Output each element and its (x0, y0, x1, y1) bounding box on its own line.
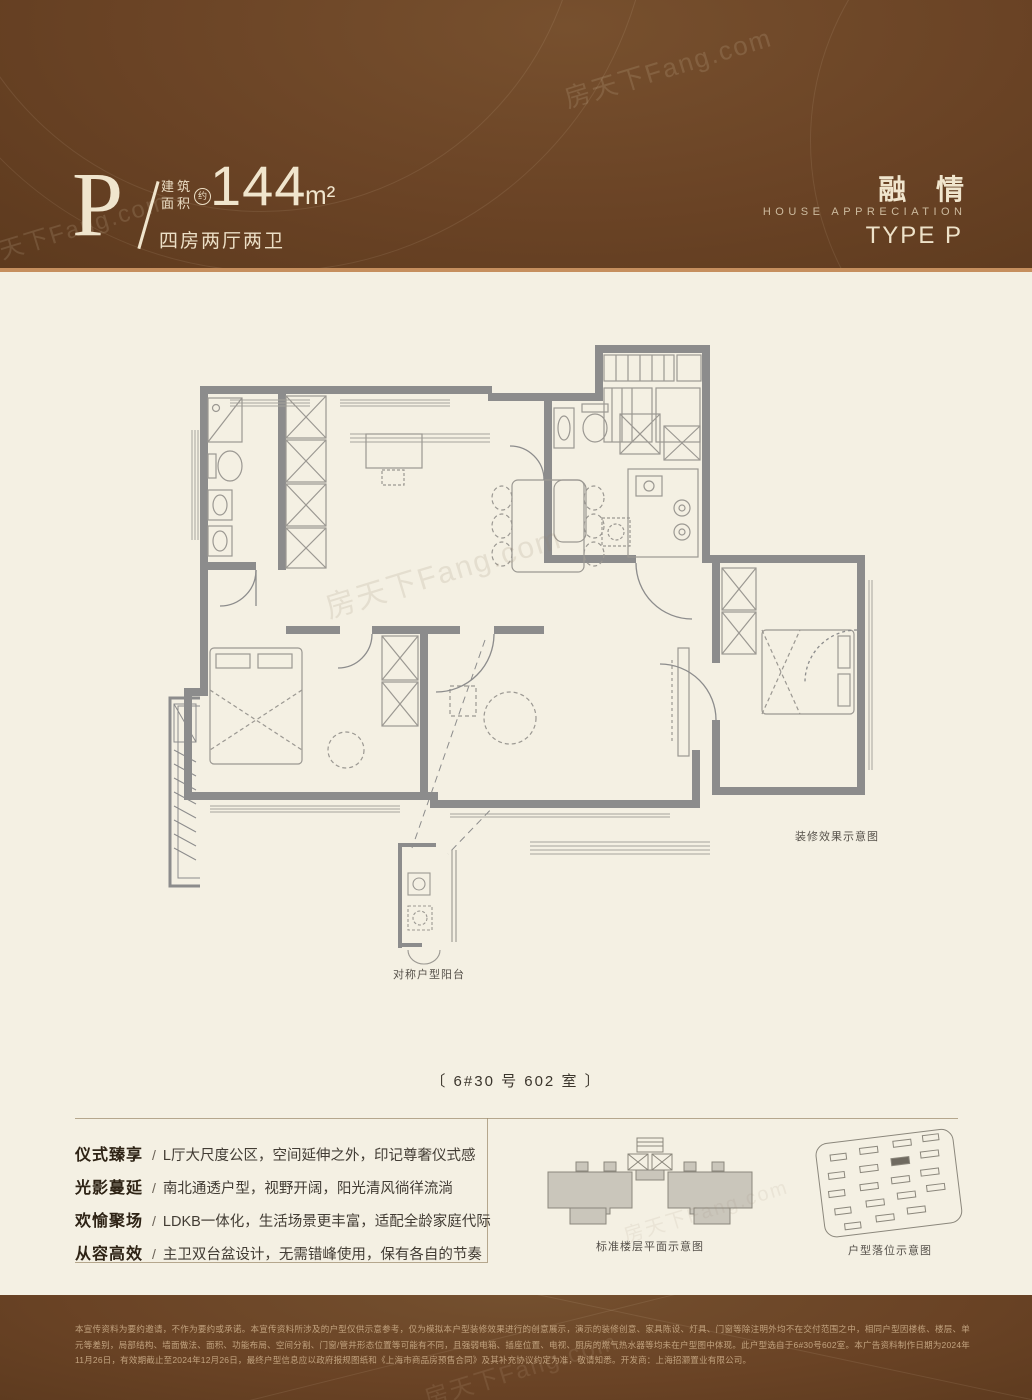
feature-row: 从容高效 / 主卫双台盆设计，无需错峰使用，保有各自的节奏 (75, 1240, 487, 1273)
divider-horizontal-top (75, 1118, 958, 1119)
floorplan-drawing (150, 330, 890, 1010)
divider-vertical (487, 1118, 488, 1263)
feature-desc: L厅大尺度公区，空间延伸之外，印记尊奢仪式感 (163, 1144, 476, 1165)
decoration-note: 装修效果示意图 (795, 828, 879, 844)
floorplate-diagram (540, 1136, 760, 1236)
disclaimer-line-3: 信息应以政府报规图纸和《上海市商品房预售合同》及其补充协议约定为准，敬请知悉。开… (281, 1355, 751, 1365)
floorplate-caption: 标准楼层平面示意图 (550, 1238, 750, 1254)
brand-name-cn: 融 情 (878, 168, 975, 208)
feature-row: 仪式臻享 / L厅大尺度公区，空间延伸之外，印记尊奢仪式感 (75, 1141, 487, 1174)
area-unit: m² (305, 180, 335, 211)
footer-band: 房天下Fang.com 本宣传资料为要约邀请，不作为要约或承诺。本宣传资料所涉及… (0, 1295, 1032, 1400)
feature-desc: 南北通透户型，视野开阔，阳光清风徜徉流淌 (163, 1177, 453, 1198)
feature-title: 欢愉聚场 (75, 1207, 143, 1231)
area-label-bottom: 面积 (161, 195, 193, 212)
feature-list: 仪式臻享 / L厅大尺度公区，空间延伸之外，印记尊奢仪式感 光影蔓延 / 南北通… (75, 1141, 487, 1273)
siteplan-caption: 户型落位示意图 (818, 1242, 962, 1258)
feature-separator: / (152, 1180, 156, 1196)
type-letter: P (72, 158, 123, 250)
unit-number-label: 〔 6#30 号 602 室 〕 (0, 1070, 1032, 1091)
header-band: 房天下Fang.com 房天下Fang.com P 建筑 面积 约 144 m²… (0, 0, 1032, 268)
area-label: 建筑 面积 (161, 178, 193, 212)
feature-title: 仪式臻享 (75, 1141, 143, 1165)
area-value: 144 (210, 158, 306, 214)
layout-text: 四房两厅两卫 (159, 226, 285, 253)
type-name: TYPE P (866, 222, 963, 250)
feature-separator: / (152, 1147, 156, 1163)
area-label-top: 建筑 (161, 178, 193, 195)
disclaimer-text: 本宣传资料为要约邀请，不作为要约或承诺。本宣传资料所涉及的户型仅供示意参考，仅为… (75, 1322, 970, 1369)
feature-desc: LDKB一体化，生活场景更丰富，适配全龄家庭代际 (163, 1210, 491, 1231)
floorplan-poster: 房天下Fang.com 房天下Fang.com P 建筑 面积 约 144 m²… (0, 0, 1032, 1400)
feature-row: 光影蔓延 / 南北通透户型，视野开阔，阳光清风徜徉流淌 (75, 1174, 487, 1207)
feature-separator: / (152, 1246, 156, 1262)
siteplan-diagram (806, 1126, 974, 1242)
feature-title: 光影蔓延 (75, 1174, 143, 1198)
feature-title: 从容高效 (75, 1240, 143, 1264)
header-divider-line (0, 268, 1032, 272)
feature-row: 欢愉聚场 / LDKB一体化，生活场景更丰富，适配全龄家庭代际 (75, 1207, 487, 1240)
balcony-note: 对称户型阳台 (374, 966, 484, 982)
feature-separator: / (152, 1213, 156, 1229)
feature-desc: 主卫双台盆设计，无需错峰使用，保有各自的节奏 (163, 1243, 482, 1264)
brand-name-en: HOUSE APPRECIATION (763, 206, 967, 218)
approx-badge: 约 (194, 188, 211, 205)
